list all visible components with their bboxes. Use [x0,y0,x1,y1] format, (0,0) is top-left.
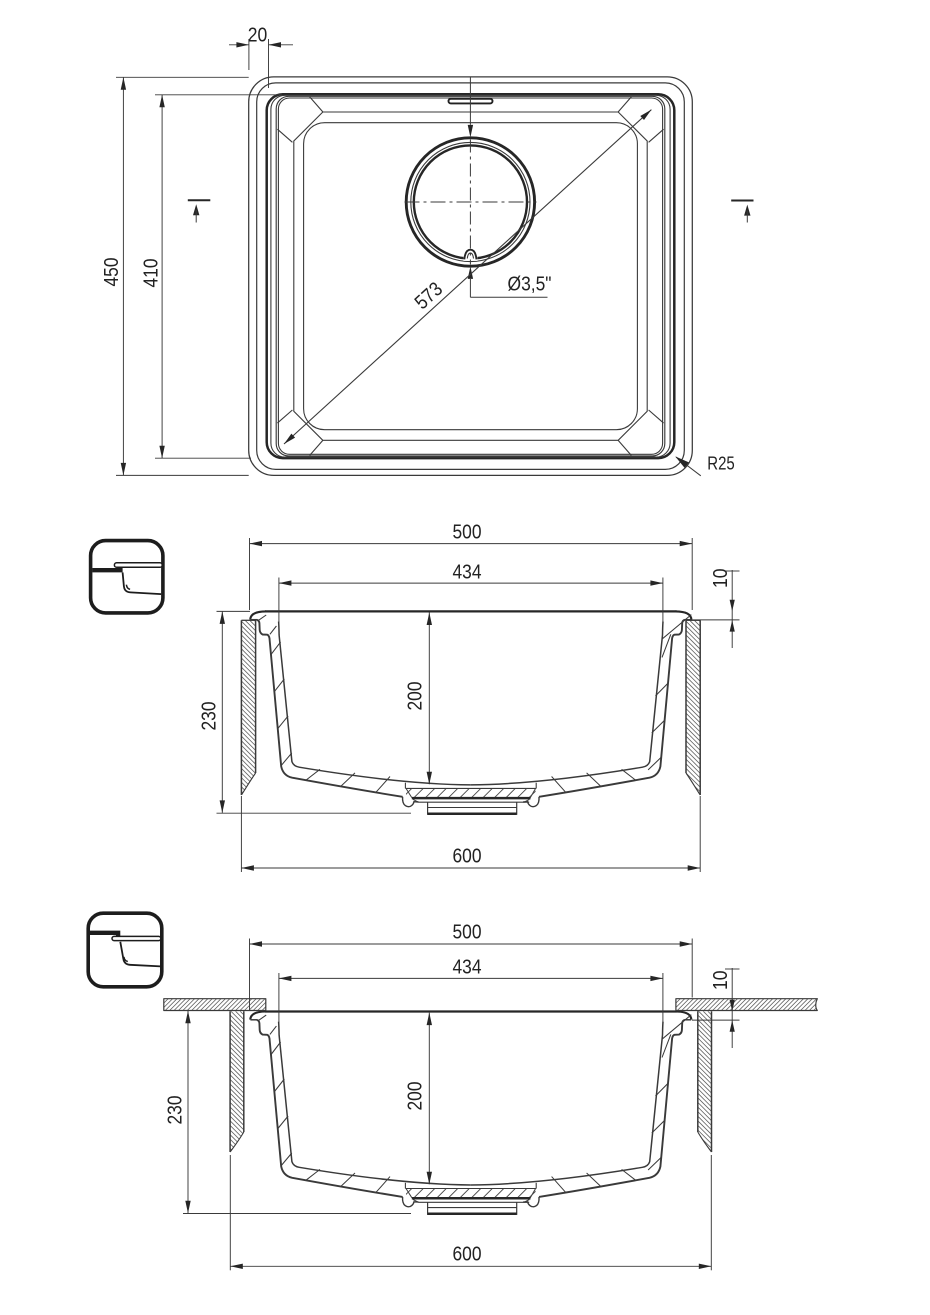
svg-text:434: 434 [453,561,482,583]
svg-text:200: 200 [404,682,426,711]
svg-text:10: 10 [710,971,732,991]
svg-text:434: 434 [453,957,482,979]
svg-text:200: 200 [404,1082,426,1111]
svg-text:20: 20 [248,25,268,47]
svg-text:500: 500 [453,922,482,944]
svg-text:410: 410 [141,259,163,288]
svg-text:Ø3,5": Ø3,5" [508,274,552,296]
svg-text:230: 230 [165,1096,187,1125]
svg-text:10: 10 [710,569,732,589]
svg-text:230: 230 [199,702,221,731]
svg-text:450: 450 [101,258,123,287]
svg-text:600: 600 [453,845,482,867]
svg-text:R25: R25 [707,453,735,474]
svg-text:600: 600 [453,1244,482,1266]
svg-text:500: 500 [453,521,482,543]
